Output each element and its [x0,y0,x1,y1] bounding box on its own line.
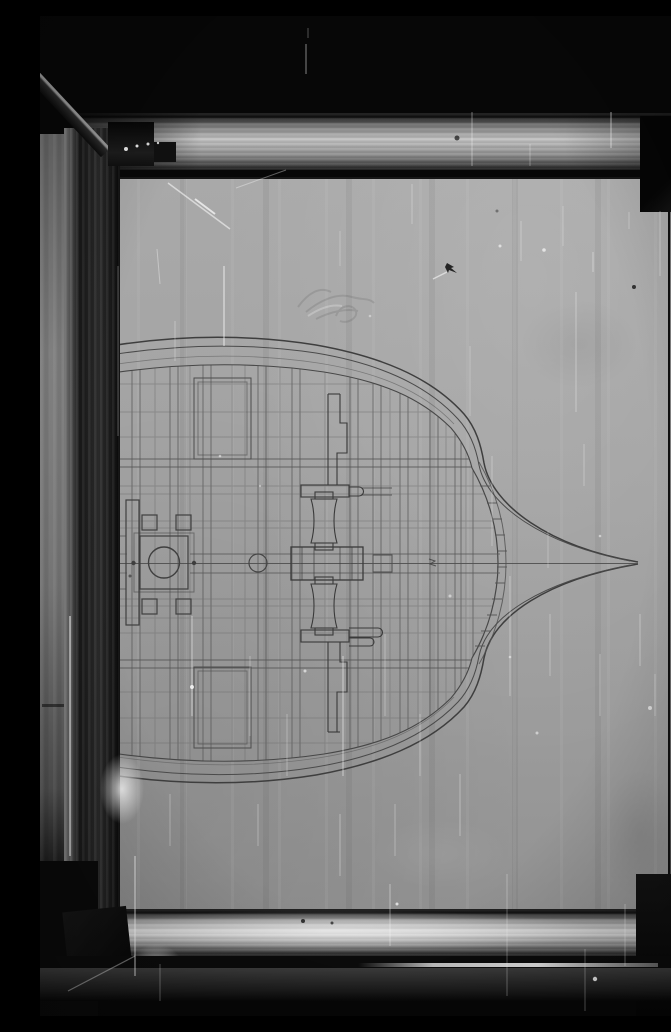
photo-vignette [40,16,671,1016]
photograph [40,16,671,1016]
